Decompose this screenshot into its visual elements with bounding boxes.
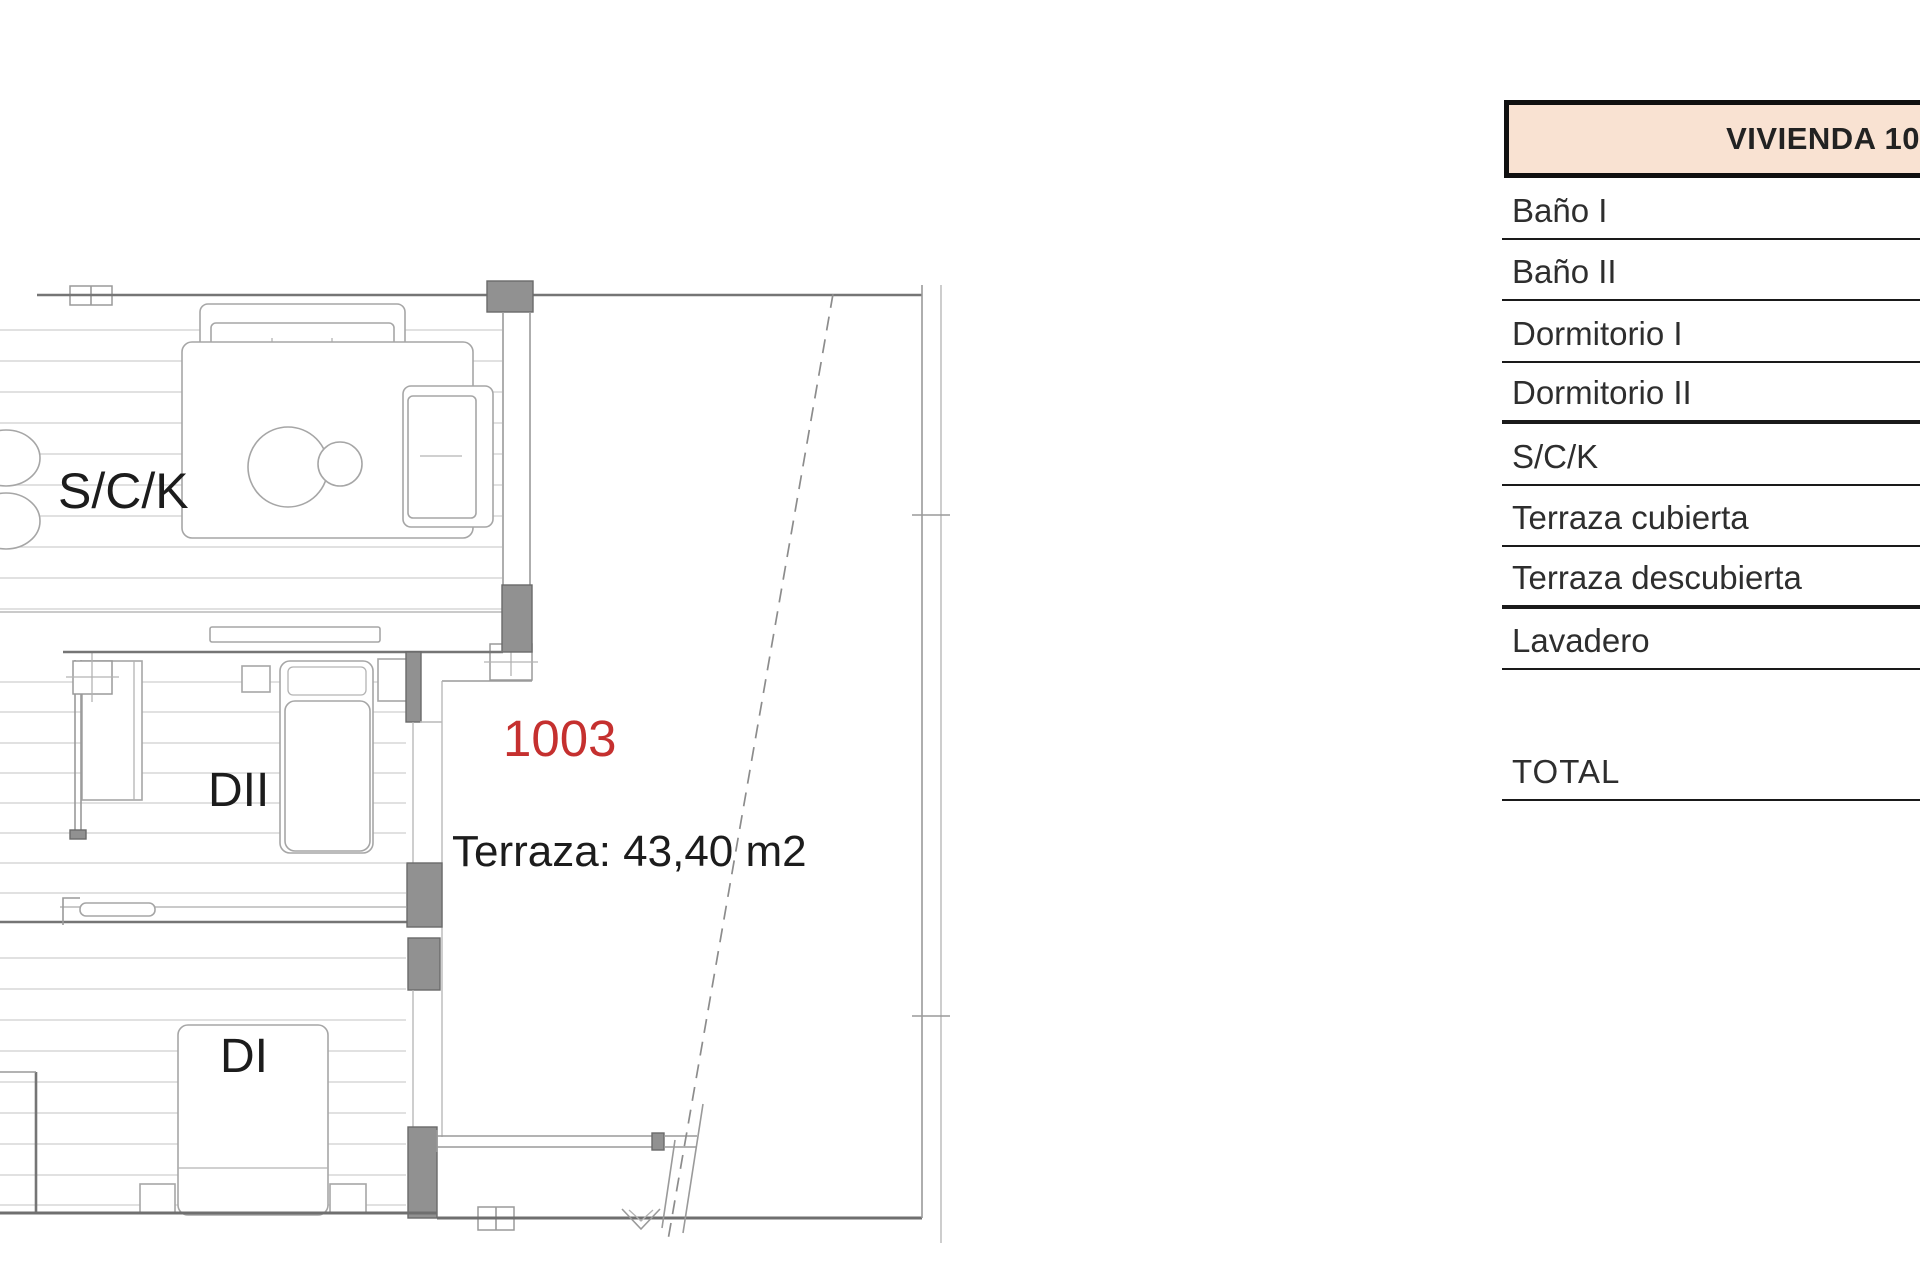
terrace-area-label: Terraza: 43,40 m2: [452, 827, 807, 876]
dashed-boundary-line: [668, 294, 833, 1240]
closet-dii: [378, 659, 410, 701]
wall-block-top-junction: [487, 281, 533, 312]
table-row-label: Baño I: [1512, 192, 1607, 230]
table-row: Terraza descubierta: [1502, 547, 1920, 609]
window-cross-left: [66, 652, 119, 702]
di-closet-wall: [0, 1072, 36, 1213]
table-row-label: Dormitorio I: [1512, 315, 1683, 353]
table-row-label: Dormitorio II: [1512, 374, 1692, 412]
di-right-wall: [408, 938, 440, 1218]
table-header: VIVIENDA 10: [1504, 100, 1920, 178]
room-label-dii: DII: [208, 764, 269, 817]
table-header-title: VIVIENDA 10: [1726, 121, 1920, 157]
unit-number-label: 1003: [503, 710, 616, 767]
room-label-di: DI: [220, 1030, 268, 1083]
table-row-label: S/C/K: [1512, 438, 1598, 476]
terrace-railing: [437, 1130, 697, 1152]
table-row: Baño II: [1502, 240, 1920, 302]
table-row: Dormitorio II: [1502, 363, 1920, 425]
terrace-right-boundary: [912, 285, 950, 1243]
counter-shelf: [210, 627, 380, 642]
sofa: [182, 304, 493, 538]
bed-dii: [280, 661, 373, 853]
table-row: Lavadero: [1502, 609, 1920, 671]
table-total-row: TOTAL: [1502, 740, 1920, 801]
table-row-label: Terraza descubierta: [1512, 559, 1802, 597]
sck-right-wall: [502, 312, 532, 652]
table-rows: Baño I Baño II Dormitorio I Dormitorio I…: [1502, 178, 1920, 670]
bedside-table-dii: [242, 666, 270, 692]
table-row-label: Terraza cubierta: [1512, 499, 1749, 537]
table-row: S/C/K: [1502, 424, 1920, 486]
vivienda-area-table: VIVIENDA 10 Baño I Baño II Dormitorio I …: [1502, 100, 1920, 670]
bedside-table-di-left: [140, 1184, 175, 1213]
slanted-lines: [662, 1104, 703, 1233]
table-row: Terraza cubierta: [1502, 486, 1920, 548]
table-row-label: Lavadero: [1512, 622, 1650, 660]
table-row: Dormitorio I: [1502, 301, 1920, 363]
floor-plan-page: S/C/K DII DI 1003 Terraza: 43,40 m2 VIVI…: [0, 0, 1920, 1280]
table-total-label: TOTAL: [1512, 753, 1620, 791]
dining-chairs: [0, 430, 40, 549]
dii-right-wall: [406, 652, 442, 927]
table-row: Baño I: [1502, 178, 1920, 240]
bedside-table-di-right: [330, 1184, 366, 1213]
table-row-label: Baño II: [1512, 253, 1617, 291]
room-label-sck: S/C/K: [58, 463, 189, 519]
